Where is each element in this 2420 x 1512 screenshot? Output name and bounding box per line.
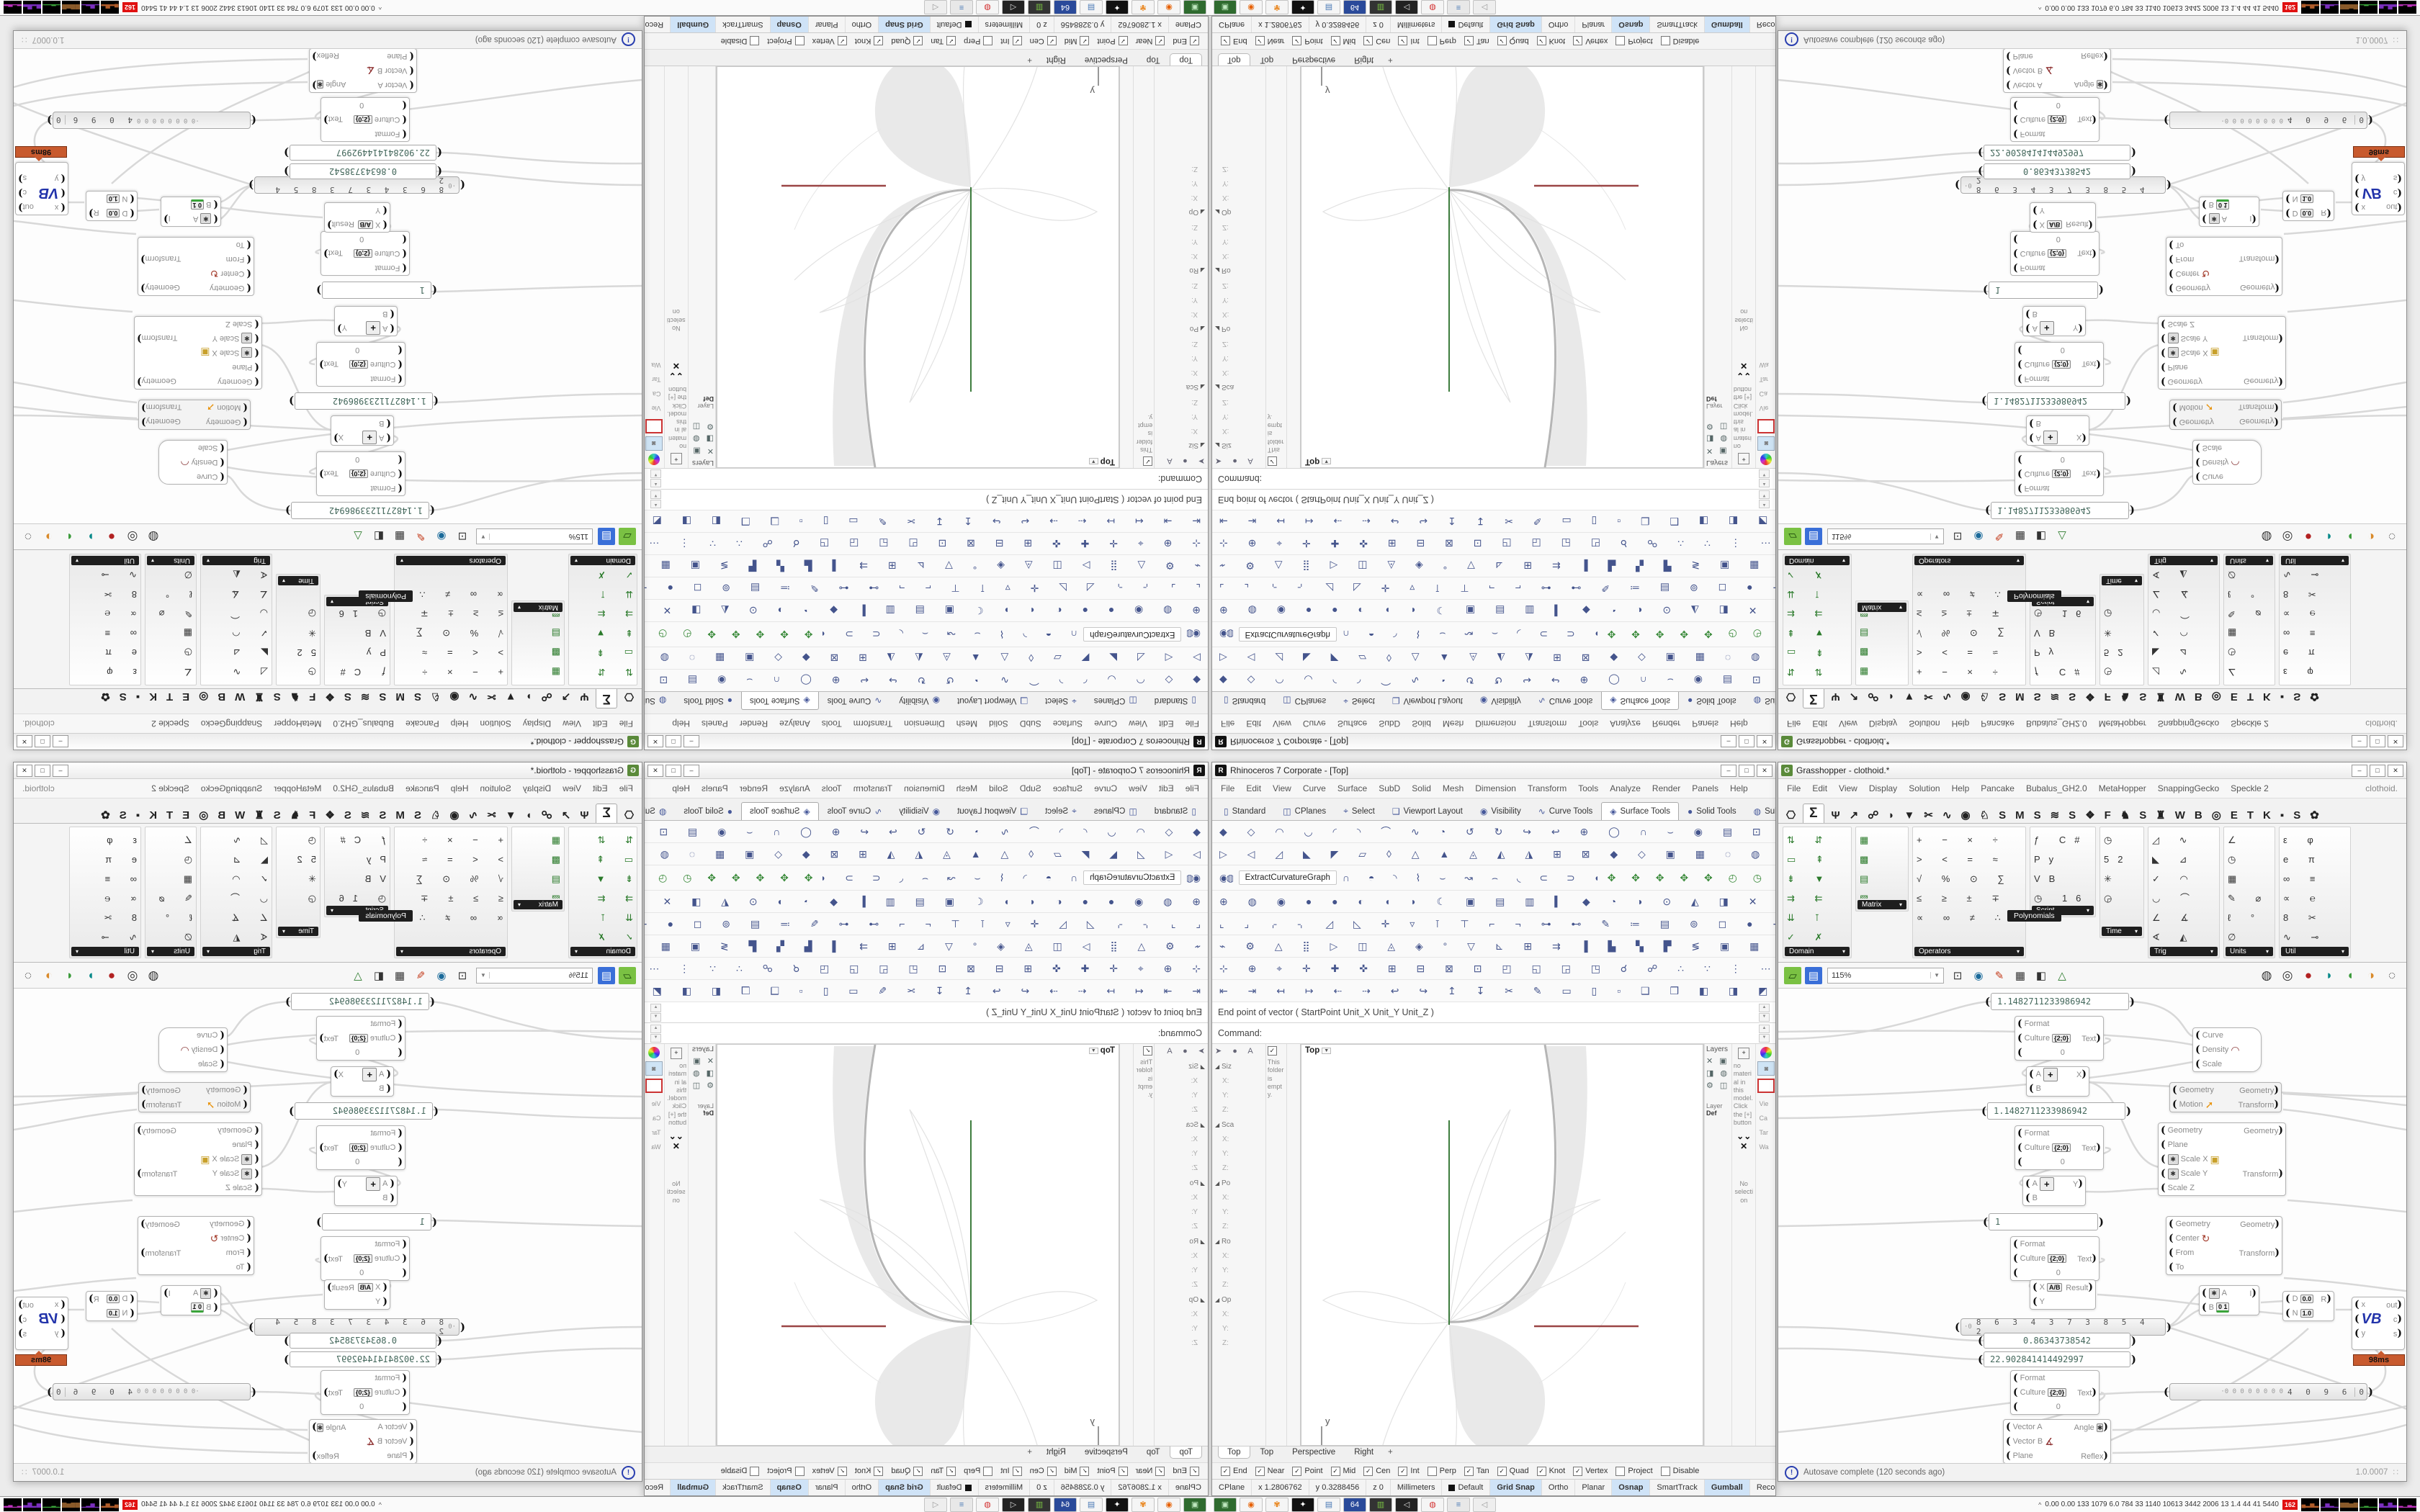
component-tab-icon[interactable]: ♜ xyxy=(252,689,266,705)
rhino-toolbar-row[interactable]: ⌁ ⚙ △ ⣿ ▷ ◫ ◬ ◈ ° ▽ ⊾ ⊞ ⇉ ▐ ▙ ▚ ▛ ≶ ▣ ▦ … xyxy=(1212,935,1775,958)
grasshopper-menu-item[interactable]: Bubalus_GH2.0 xyxy=(333,783,394,793)
rhino-toolbar-tab[interactable]: ● Solid Tools xyxy=(675,692,741,710)
command-scrollbar[interactable]: ▲▼ xyxy=(1759,1002,1770,1022)
resize-grip[interactable]: ∷ xyxy=(20,1467,27,1477)
capture-frame-icon[interactable] xyxy=(645,419,663,433)
status-toggle[interactable]: Record History xyxy=(1750,1480,1775,1495)
gh-move-node[interactable]: Geometry Geometry Motion ➚ Transform xyxy=(138,400,251,430)
rhino-menu-item[interactable]: Mesh xyxy=(956,719,977,729)
viewport-tab[interactable]: Perspective xyxy=(1076,53,1137,66)
ribbon-group-label[interactable]: Matrix xyxy=(1857,603,1906,612)
expression-icon[interactable]: ✱ xyxy=(2168,1169,2179,1179)
viewport-tab[interactable]: Top xyxy=(1170,53,1202,66)
field-y[interactable]: Y: xyxy=(1222,179,1263,187)
ribbon-group-icons[interactable]: ⇅ ⇵ ▭ ⇞ ⇟ ▼ ⇉ ⇇ ⇊ ⊺ ✓ ✗ ↕ ↔ ▤ xyxy=(569,827,637,945)
checkbox-icon[interactable] xyxy=(795,1467,805,1476)
gh-panel[interactable]: 22.902841414492997 xyxy=(290,1351,436,1367)
ribbon-group-label[interactable]: Util xyxy=(71,947,139,956)
grasshopper-menu-item[interactable]: Solution xyxy=(480,719,511,729)
checkbox-icon[interactable] xyxy=(1080,37,1090,46)
expression-icon[interactable]: ✱ xyxy=(200,214,211,225)
rhino-toolbar-row[interactable]: ⊕ ◍ ◉ ● ● ◐ ◖ ◗ ☾ ▣ ▤ ▥ ▍ ◆ ◔ ◑ ⊙ ◭ ◨ ✕ … xyxy=(1212,599,1775,621)
grasshopper-menu-item[interactable]: SnappingGecko xyxy=(201,719,262,729)
tray-graph-tile[interactable]: ▁▅▂▁ xyxy=(81,1498,99,1511)
component-tab-icon[interactable]: ◉ xyxy=(1959,689,1973,705)
gh-scale-nu-node[interactable]: Geometry Geometry Plane ✱ Scale X ▣ ✱ Sc… xyxy=(2158,316,2286,390)
osnap-checkbox[interactable]: Knot xyxy=(855,37,884,46)
rhino-menu-item[interactable]: Surface xyxy=(1053,783,1083,793)
checkbox-icon[interactable] xyxy=(1080,1467,1090,1476)
taskbar-app-icon[interactable]: ▤ xyxy=(1317,1,1340,15)
library-checkbox[interactable]: ✓ xyxy=(1143,456,1152,466)
taskbar-app-icon[interactable]: ▣ xyxy=(1214,1,1237,15)
grasshopper-menu-item[interactable]: Pancake xyxy=(405,783,439,793)
expression-icon[interactable]: ✱ xyxy=(241,348,252,359)
component-tab-icon[interactable]: B xyxy=(215,808,228,823)
status-toggle[interactable]: Osnap xyxy=(1612,1480,1650,1495)
viewport-title[interactable]: Top xyxy=(1101,1046,1115,1055)
component-tab-icon[interactable]: ⎔ xyxy=(622,807,636,823)
preview-mode-icon[interactable]: ◌ xyxy=(2383,528,2401,546)
canvas-tool-icon[interactable]: ▱ xyxy=(619,528,636,546)
taskbar-app-icon[interactable]: ✾ xyxy=(1131,1,1155,15)
field-x[interactable]: X: xyxy=(1222,1252,1263,1260)
osnap-checkbox[interactable]: Tan xyxy=(1464,1467,1489,1476)
canvas-tool-icon[interactable]: ▦ xyxy=(2012,528,2029,546)
maximize-icon[interactable]: □ xyxy=(2370,736,2385,748)
component-tab-icon[interactable]: M xyxy=(393,689,407,704)
component-tab-icon[interactable]: E xyxy=(180,808,192,823)
grasshopper-menu-item[interactable]: Bubalus_GH2.0 xyxy=(2026,719,2087,729)
ribbon-group-icons[interactable]: ▦ ▩ ▤ ▧ ▨ ⊞ xyxy=(1856,613,1908,685)
checkbox-icon[interactable] xyxy=(983,37,992,46)
field-x[interactable]: X: xyxy=(1157,252,1198,260)
rhino-toolbar-tab[interactable]: ▯ Standard xyxy=(1146,692,1205,710)
add-viewport-tab-icon[interactable]: + xyxy=(1023,54,1036,66)
field-z[interactable]: Z: xyxy=(1157,398,1198,406)
minimize-icon[interactable]: – xyxy=(53,765,68,777)
field-x[interactable]: X: xyxy=(1222,310,1263,318)
add-viewport-tab-icon[interactable]: + xyxy=(1023,1446,1036,1458)
osnap-checkbox[interactable]: Perp xyxy=(1428,37,1456,46)
component-tab-icon[interactable]: ↗ xyxy=(560,689,573,705)
canvas-tool-icon[interactable]: △ xyxy=(349,528,367,546)
gh-rotate-node[interactable]: Geometry Geometry Center ↻ From Transfor… xyxy=(2166,237,2282,296)
rhino-toolbar-tab[interactable]: ◫ CPlanes xyxy=(1274,692,1335,710)
maximize-icon[interactable]: □ xyxy=(35,765,50,777)
grasshopper-menu-item[interactable]: Edit xyxy=(593,719,608,729)
rhino-titlebar[interactable]: R Rhinoceros 7 Corporate - [Top] – □ ✕ xyxy=(1212,733,1775,750)
grasshopper-titlebar[interactable]: G Grasshopper - clothoid.* – □ ✕ xyxy=(14,762,642,779)
grasshopper-menu-item[interactable]: Bubalus_GH2.0 xyxy=(2026,783,2087,793)
grasshopper-menu-item[interactable]: Edit xyxy=(593,783,608,793)
layer-default-label[interactable]: Def xyxy=(690,395,714,402)
command-prompt-line[interactable]: Command: ▲▼ xyxy=(645,1023,1208,1044)
grasshopper-menu-item[interactable]: Help xyxy=(1952,783,1970,793)
rhino-toolbar-tab[interactable]: ▯ Standard xyxy=(1215,802,1274,820)
taskbar-app-icon[interactable]: ◉ xyxy=(1240,1498,1263,1512)
tray-graph-tile[interactable]: ▂▁▃▂ xyxy=(4,1498,22,1511)
rhino-toolbar-row[interactable]: ▷ ◁ ◿ ◣ ◤ ▱ ◊ △ ▲ ◬ ◭ ◮ ⊞ ⊠ ◆ ◇ ▣ ▦ ◌ ◍ … xyxy=(645,647,1208,669)
status-toggle[interactable]: Gumball xyxy=(670,17,715,32)
gh-scale-nu-node[interactable]: Geometry Geometry Plane ✱ Scale X ▣ ✱ Sc… xyxy=(134,1122,262,1196)
rhino-menu-item[interactable]: Panels xyxy=(1692,719,1718,729)
capture-frame-icon[interactable] xyxy=(645,1079,663,1093)
camera-icon[interactable]: ◙ xyxy=(645,436,663,451)
grasshopper-menu-item[interactable]: Solution xyxy=(1909,719,1940,729)
component-tab-icon[interactable]: W xyxy=(2173,689,2187,704)
gh-vb-script-node[interactable]: x out VB c y s xyxy=(2352,1297,2405,1350)
taskbar-app-icon[interactable]: ▤ xyxy=(1080,1498,1103,1512)
component-tab-icon[interactable]: S xyxy=(342,689,354,704)
camera-icon[interactable]: ◙ xyxy=(1757,1061,1775,1076)
camera-icon[interactable]: ◙ xyxy=(1757,436,1775,451)
status-toggle[interactable]: Planar xyxy=(1575,17,1612,32)
taskbar-app-icon[interactable]: ◍ xyxy=(1421,1,1444,15)
rhino-toolbar-row[interactable]: ▷ ◁ ◿ ◣ ◤ ▱ ◊ △ ▲ ◬ ◭ ◮ ⊞ ⊠ ◆ ◇ ▣ ▦ ◌ ◍ … xyxy=(1212,647,1775,669)
jar-icon[interactable]: ◍ xyxy=(1187,629,1193,641)
component-tab-icon[interactable]: Ψ xyxy=(1829,808,1842,823)
rhino-toolbar-tab[interactable]: ◉ Visibility xyxy=(1471,802,1530,820)
rhino-menu-item[interactable]: Tools xyxy=(822,783,842,793)
command-scrollbar[interactable]: ▲▼ xyxy=(1759,469,1770,489)
rhino-toolbar-row[interactable]: ⊹ ⊕ ⌖ ✛ ✚ ✜ ⊞ ⊟ ⊠ ⊡ ◰ ◱ ◲ ◳ ☌ ☍ ∴ ∵ ⋮ ⋯ … xyxy=(645,958,1208,980)
field-z[interactable]: Z: xyxy=(1222,1164,1263,1172)
taskbar-app-icon[interactable]: ≡ xyxy=(1447,1498,1470,1512)
ribbon-group-icons[interactable]: ⇅ ⇵ ▭ ⇞ ⇟ ▼ ⇉ ⇇ ⇊ ⊺ ✓ ✗ ↕ ↔ ▤ xyxy=(1783,827,1851,945)
canvas-tool-icon[interactable]: ◉ xyxy=(433,528,450,546)
osnap-checkbox[interactable]: Vertex xyxy=(1573,37,1608,46)
tray-chevron-icon[interactable]: ^ xyxy=(379,4,382,12)
osnap-checkbox[interactable]: Perp xyxy=(1428,1467,1456,1476)
ribbon-group-label[interactable]: Units xyxy=(2226,947,2273,956)
ribbon-group-icons[interactable]: ◷ 52 ✳ ◶ xyxy=(2100,587,2143,685)
rhino-viewport[interactable]: Top ▼ xyxy=(1301,1044,1703,1446)
preview-mode-icon[interactable]: ◑ xyxy=(2362,528,2380,546)
osnap-checkbox[interactable]: Quad xyxy=(891,37,923,46)
component-tab-icon[interactable]: ◗ xyxy=(524,689,534,704)
ribbon-group-icons[interactable]: + − × ÷ > < = ≈ √ % ⊙ ∑ ≤ ≥ ± ∓ ∝ ∞ ≠ ∴ xyxy=(1913,567,2025,685)
component-tab-icon[interactable]: ◉ xyxy=(447,807,461,823)
preview-mode-icon[interactable]: ◗ xyxy=(82,967,99,984)
library-checkbox[interactable]: ✓ xyxy=(1268,456,1277,466)
component-tab-icon[interactable]: S xyxy=(272,808,283,823)
extract-curvature-graph-button[interactable]: ExtractCurvatureGraph xyxy=(1083,627,1181,642)
gh-panel[interactable]: 1.1482711233986942 xyxy=(1987,1102,2125,1120)
rhino-toolbar-row[interactable]: ⌞ ⌟ ⌌ ⌍ ◿ ◺ ✛ ▿ ⊺ ⊤ ⌐ ¬ ⊶ ⊷ ✎ ≔ ▤ ⊚ ◻ ● … xyxy=(1212,913,1775,935)
tray-graph-tile[interactable]: ▂▁▃▂ xyxy=(2398,1498,2416,1511)
rhino-toolbar-row[interactable]: ◆ ◇ ◠ ◡ ◜ ◝ ⌒ ∿ ◔ ↺ ↻ ↪ ↩ ⊕ ◯ ∩ ⌣ ◉ ▤ ⊡ … xyxy=(645,821,1208,843)
command-scrollbar[interactable]: ▲▼ xyxy=(650,1023,661,1043)
zoom-select[interactable]: 115%▼ xyxy=(476,529,593,545)
gh-panel[interactable]: 1.1482711233986942 xyxy=(291,502,429,519)
rhino-toolbar-tab[interactable]: ● Solid Tools xyxy=(675,802,741,820)
checkbox-icon[interactable] xyxy=(983,1467,992,1476)
rhino-titlebar[interactable]: R Rhinoceros 7 Corporate - [Top] – □ ✕ xyxy=(645,733,1208,750)
preview-mode-icon[interactable]: ● xyxy=(2300,967,2317,984)
jar-icon[interactable]: ◍ xyxy=(1226,872,1232,884)
viewport-tab[interactable]: Top xyxy=(1138,1446,1169,1459)
command-scrollbar[interactable]: ▲▼ xyxy=(650,469,661,489)
gh-curvature-graph-node[interactable]: Curve Density ◠ Scale xyxy=(158,440,228,485)
rhino-menu-item[interactable]: Transform xyxy=(1528,719,1567,729)
ribbon-group-label[interactable]: Matrix xyxy=(1857,900,1906,909)
gh-panel[interactable]: 1 xyxy=(322,1213,431,1230)
osnap-checkbox[interactable]: Tan xyxy=(1464,37,1489,46)
rhino-menu-item[interactable]: Analyze xyxy=(1610,719,1641,729)
command-scrollbar[interactable]: ▲▼ xyxy=(1759,1023,1770,1043)
gh-addition-node[interactable]: A + Y B xyxy=(2022,1176,2086,1206)
taskbar-app-icon[interactable]: ◁ xyxy=(1473,1,1496,15)
viewport-tab[interactable]: Right xyxy=(1345,53,1382,66)
checkbox-icon[interactable] xyxy=(1190,37,1199,46)
component-tab-icon[interactable]: ◎ xyxy=(2210,807,2223,823)
canvas-tool-icon[interactable]: ▦ xyxy=(391,528,408,546)
osnap-checkbox[interactable]: Disable xyxy=(1661,1467,1700,1476)
gh-panel[interactable]: 22.902841414492997 xyxy=(1984,145,2130,161)
tray-graph-tile[interactable]: ▁▅▂▁ xyxy=(2321,1498,2339,1511)
grasshopper-menu-item[interactable]: SnappingGecko xyxy=(2158,783,2219,793)
checkbox-icon[interactable] xyxy=(1013,37,1022,46)
osnap-checkbox[interactable]: Cen xyxy=(1363,1467,1390,1476)
rhino-menu-item[interactable]: Solid xyxy=(1412,719,1431,729)
gh-scale-nu-node[interactable]: Geometry Geometry Plane ✱ Scale X ▣ ✱ Sc… xyxy=(134,316,262,390)
gh-addition-node[interactable]: A + Y B xyxy=(334,306,398,336)
osnap-checkbox[interactable]: Disable xyxy=(1661,37,1700,46)
color-wheel-icon[interactable] xyxy=(1760,454,1772,465)
preview-mode-icon[interactable]: ◍ xyxy=(2258,528,2275,546)
preview-mode-icon[interactable]: ◌ xyxy=(19,967,37,984)
field-x[interactable]: X: xyxy=(1222,1135,1263,1143)
add-material-button[interactable]: + xyxy=(671,453,682,464)
taskbar-app-icon[interactable]: ◍ xyxy=(976,1498,999,1512)
component-tab-icon[interactable]: M xyxy=(2013,689,2027,704)
curve-tools-icons[interactable]: ∩ ◓ ◝ ⌇ ⌣ ↝ ⌢ ◟ ⊂ ⊃ ◖ ◗ ⊛ ◎ ⊜ ○ ● ◦ ◠ ◡ xyxy=(1343,872,1597,884)
taskbar-app-icon[interactable]: 64 xyxy=(1343,1498,1366,1512)
rhino-toolbar-tab[interactable]: ⌖ Select xyxy=(1335,692,1384,711)
checkbox-icon[interactable] xyxy=(1537,37,1546,46)
field-y[interactable]: Y: xyxy=(1157,1266,1198,1274)
grasshopper-menu-item[interactable]: Pancake xyxy=(1981,783,2015,793)
gh-move-node[interactable]: Geometry Geometry Motion ➚ Transform xyxy=(2169,1082,2282,1112)
gh-divide-domain-node[interactable]: D 0.0 R N 1.0 xyxy=(2282,191,2334,221)
add-viewport-tab-icon[interactable]: + xyxy=(1384,1446,1397,1458)
capture-frame-icon[interactable] xyxy=(1757,419,1775,433)
gh-format-node[interactable]: Format Culture {2;0} Text 0 xyxy=(2015,1016,2104,1061)
component-tab-icon[interactable]: S xyxy=(2066,808,2078,823)
osnap-checkbox[interactable]: Near xyxy=(1136,1467,1165,1476)
field-x[interactable]: X: xyxy=(1222,427,1263,435)
component-tab-icon[interactable]: S xyxy=(412,689,423,704)
preview-mode-icon[interactable]: ◍ xyxy=(145,967,162,984)
checkbox-icon[interactable] xyxy=(1398,37,1407,46)
taskbar-app-icon[interactable]: ◁ xyxy=(1395,1,1418,15)
preview-mode-icon[interactable]: ◗ xyxy=(2321,967,2338,984)
ribbon-group-label[interactable]: Trig xyxy=(2150,947,2218,956)
osnap-checkbox[interactable]: Near xyxy=(1136,37,1165,46)
ribbon-group-icons[interactable]: ∠ ◷ ▦ ✎ ⌀ ℓ ° ∅ xyxy=(2224,567,2275,685)
rhino-menu-item[interactable]: File xyxy=(1186,783,1199,793)
gh-divide-domain-node[interactable]: D 0.0 R N 1.0 xyxy=(86,191,138,221)
grasshopper-menu-item[interactable]: Display xyxy=(1869,719,1897,729)
rhino-toolbar-tab[interactable]: ◫ CPlanes xyxy=(1085,692,1146,710)
ribbon-group-icons[interactable]: ∠ ◷ ▦ ✎ ⌀ ℓ ° ∅ xyxy=(2224,827,2275,945)
component-tab-icon[interactable]: ↗ xyxy=(560,807,573,823)
field-z[interactable]: Z: xyxy=(1157,1164,1198,1172)
tray-graph-tile[interactable]: ▁▂▁▁ xyxy=(42,1,60,14)
component-tab-icon[interactable]: ❖ xyxy=(2083,807,2097,823)
gh-panel[interactable]: 1.1482711233986942 xyxy=(295,392,433,410)
component-tab-icon[interactable]: S xyxy=(412,808,423,823)
command-prompt-line[interactable]: Command: ▲▼ xyxy=(645,468,1208,489)
checkbox-icon[interactable] xyxy=(1190,1467,1199,1476)
viewport-tab[interactable]: Perspective xyxy=(1076,1446,1137,1459)
minimize-icon[interactable]: – xyxy=(684,736,699,748)
osnap-checkbox[interactable]: Quad xyxy=(1497,1467,1529,1476)
checkbox-icon[interactable] xyxy=(1615,37,1625,46)
osnap-checkbox[interactable]: Mid xyxy=(1065,37,1090,46)
field-x[interactable]: X: xyxy=(1157,1135,1198,1143)
viewport-tab[interactable]: Perspective xyxy=(1283,1446,1344,1459)
ribbon-group-label[interactable]: Util xyxy=(71,556,139,565)
field-y[interactable]: Y: xyxy=(1222,1208,1263,1216)
ribbon-group-label[interactable]: Trig xyxy=(202,556,270,565)
rhino-toolbar-row[interactable]: ▷ ◁ ◿ ◣ ◤ ▱ ◊ △ ▲ ◬ ◭ ◮ ⊞ ⊠ ◆ ◇ ▣ ▦ ◌ ◍ … xyxy=(1212,843,1775,865)
close-panel-icon[interactable]: ✕ xyxy=(1734,361,1754,371)
component-tab-icon[interactable]: Σ xyxy=(596,689,617,708)
gh-panel[interactable]: 1.1482711233986942 xyxy=(1987,392,2125,410)
tray-graph-tile[interactable]: ▅▂▆▃ xyxy=(23,1,41,14)
grasshopper-menu-item[interactable]: Speckle 2 xyxy=(2231,719,2269,729)
rhino-menu-item[interactable]: Mesh xyxy=(1443,783,1464,793)
gh-format-node[interactable]: Format Culture {2;0} Text 0 xyxy=(2010,1370,2099,1415)
tray-graph-tile[interactable]: ▂▁▃▂ xyxy=(2398,1,2416,14)
field-x[interactable]: X: xyxy=(1222,194,1263,202)
osnap-checkbox[interactable]: Int xyxy=(1398,1467,1419,1476)
component-tab-icon[interactable]: ♘ xyxy=(429,689,442,705)
tray-graph-tile[interactable]: ▄▂▅▂ xyxy=(2301,1,2319,14)
grasshopper-titlebar[interactable]: G Grasshopper - clothoid.* – □ ✕ xyxy=(1778,733,2406,750)
rhino-titlebar[interactable]: R Rhinoceros 7 Corporate - [Top] – □ ✕ xyxy=(1212,762,1775,779)
rhino-menu-item[interactable]: Curve xyxy=(1094,719,1117,729)
component-tab-icon[interactable]: ◗ xyxy=(1886,808,1896,823)
preview-mode-icon[interactable]: ◖ xyxy=(2341,967,2359,984)
zoom-select[interactable]: 115%▼ xyxy=(1827,529,1944,545)
gh-panel[interactable]: 1 xyxy=(1989,282,2098,299)
preview-mode-icon[interactable]: ◌ xyxy=(2383,967,2401,984)
preview-mode-icon[interactable]: ◎ xyxy=(2279,967,2296,984)
rhino-toolbar-tab[interactable]: ∿ Curve Tools xyxy=(819,692,891,710)
command-prompt-line[interactable]: Command: ▲▼ xyxy=(1212,468,1775,489)
checkbox-icon[interactable] xyxy=(1119,1467,1128,1476)
rhino-toolbar-tab[interactable]: ◈ Surface Tools xyxy=(1601,692,1679,710)
layer-default-label[interactable]: Def xyxy=(1706,1110,1730,1117)
expression-icon[interactable]: ✱ xyxy=(241,1154,252,1165)
expression-icon[interactable]: ✱ xyxy=(2097,1423,2104,1432)
component-tab-icon[interactable]: ≋ xyxy=(2048,807,2062,823)
rhino-menu-item[interactable]: Surface xyxy=(1337,783,1367,793)
rhino-menu-item[interactable]: SubD xyxy=(1379,719,1400,729)
rhino-toolbar-row[interactable]: ⌞ ⌟ ⌌ ⌍ ◿ ◺ ✛ ▿ ⊺ ⊤ ⌐ ¬ ⊶ ⊷ ✎ ≔ ▤ ⊚ ◻ ● … xyxy=(645,577,1208,599)
minimize-icon[interactable]: – xyxy=(2352,765,2367,777)
expression-icon[interactable]: ✱ xyxy=(2168,1154,2179,1165)
ribbon-group-label[interactable]: Trig xyxy=(202,947,270,956)
rhino-menu-item[interactable]: Transform xyxy=(1528,783,1567,793)
gh-rotate-node[interactable]: Geometry Geometry Center ↻ From Transfor… xyxy=(138,1216,254,1275)
rhino-menu-item[interactable]: Transform xyxy=(853,719,892,729)
status-toggle[interactable]: Grid Snap xyxy=(878,17,930,32)
status-toggle[interactable]: Osnap xyxy=(1612,17,1650,32)
gh-format-node[interactable]: Format Culture {2;0} Text 0 xyxy=(2010,231,2099,276)
component-tab-icon[interactable]: ∿ xyxy=(1940,807,1954,823)
expression-icon[interactable]: ✱ xyxy=(200,1288,211,1299)
component-tab-icon[interactable]: S xyxy=(2291,808,2303,823)
rhino-menu-item[interactable]: Dimension xyxy=(1475,783,1516,793)
component-tab-icon[interactable]: F xyxy=(307,689,318,704)
component-tab-icon[interactable]: ↗ xyxy=(1847,689,1861,705)
checkbox-icon[interactable] xyxy=(1155,37,1165,46)
grasshopper-menu-item[interactable]: View xyxy=(1839,719,1857,729)
viewport-tab[interactable]: Top xyxy=(1138,53,1169,66)
rhino-toolbar-tab[interactable]: ∿ Curve Tools xyxy=(819,802,891,820)
ribbon-group-icons[interactable]: ◿ ∿ ◣ ⊿ ✓ ◠ ◡ ⌒ ∠ ∡ ∢ ◭ xyxy=(201,567,272,685)
field-z[interactable]: Z: xyxy=(1157,1339,1198,1347)
checkbox-icon[interactable] xyxy=(1497,37,1507,46)
add-material-button[interactable]: + xyxy=(1738,453,1749,464)
field-x[interactable]: X: xyxy=(1157,1194,1198,1202)
canvas-tool-icon[interactable]: ▦ xyxy=(391,967,408,984)
rhino-menu-item[interactable]: Dimension xyxy=(904,719,945,729)
checkbox-icon[interactable] xyxy=(1363,1467,1373,1476)
component-tab-icon[interactable]: S xyxy=(2291,689,2303,704)
osnap-checkbox[interactable]: Project xyxy=(767,1467,804,1476)
rhino-menu-item[interactable]: Help xyxy=(1730,783,1748,793)
rhino-toolbar-row[interactable]: ⌞ ⌟ ⌌ ⌍ ◿ ◺ ✛ ▿ ⊺ ⊤ ⌐ ¬ ⊶ ⊷ ✎ ≔ ▤ ⊚ ◻ ● … xyxy=(1212,577,1775,599)
checkbox-icon[interactable] xyxy=(1497,1467,1507,1476)
field-y[interactable]: Y: xyxy=(1222,354,1263,362)
canvas-tool-icon[interactable]: ◧ xyxy=(2033,528,2050,546)
layer-default-label[interactable]: Def xyxy=(1706,395,1730,402)
curve-tools-icons[interactable]: ∩ ◓ ◝ ⌇ ⌣ ↝ ⌢ ◟ ⊂ ⊃ ◖ ◗ ⊛ ◎ ⊜ ○ ● ◦ ◠ ◡ xyxy=(823,872,1077,884)
viewport-tab[interactable]: Right xyxy=(1038,1446,1075,1459)
color-wheel-icon[interactable] xyxy=(648,1047,660,1058)
component-tab-icon[interactable]: T xyxy=(2245,689,2256,704)
osnap-checkbox[interactable]: End xyxy=(1173,1467,1199,1476)
gh-format-node[interactable]: Format Culture {2;0} Text 0 xyxy=(2015,342,2104,387)
rhino-menu-item[interactable]: Analyze xyxy=(779,719,810,729)
canvas-tool-icon[interactable]: ▤ xyxy=(598,967,615,984)
taskbar-app-icon[interactable]: ◉ xyxy=(1157,1498,1180,1512)
rhino-toolbar-tab[interactable]: ◍ SubD xyxy=(1745,802,1775,820)
rhino-menu-item[interactable]: File xyxy=(1186,719,1199,729)
component-tab-icon[interactable]: T xyxy=(164,808,175,823)
rhino-toolbar-row[interactable]: ◆ ◇ ◠ ◡ ◜ ◝ ⌒ ∿ ◔ ↺ ↻ ↪ ↩ ⊕ ◯ ∩ ⌣ ◉ ▤ ⊡ … xyxy=(1212,821,1775,843)
taskbar-app-icon[interactable]: ▥ xyxy=(1369,1,1392,15)
ribbon-group-label[interactable]: Operators xyxy=(396,556,506,565)
ribbon-group-icons[interactable]: ⇅ ⇵ ▭ ⇞ ⇟ ▼ ⇉ ⇇ ⇊ ⊺ ✓ ✗ ↕ ↔ ▤ xyxy=(1783,567,1851,685)
rhino-menu-item[interactable]: Dimension xyxy=(904,783,945,793)
gh-number-slider[interactable]: ·0 0 0 0 0 0 0 0 4 0 9 6 0 xyxy=(2169,1383,2367,1400)
rhino-toolbar-row[interactable]: ⇤ ⇥ ↤ ↦ ⇠ ⇢ ↩ ↪ ↥ ↧ ✂ ✎ ▭ ▯ ▫ ❑ ❒ ◧ ◨ ◩ … xyxy=(1212,510,1775,532)
component-tab-icon[interactable]: ▪ xyxy=(2278,689,2286,704)
rhino-menu-item[interactable]: Help xyxy=(672,783,690,793)
component-tab-icon[interactable]: ◎ xyxy=(2210,689,2223,705)
field-y[interactable]: Y: xyxy=(1222,413,1263,420)
checkbox-icon[interactable] xyxy=(1661,37,1670,46)
grasshopper-menu-item[interactable]: MetaHopper xyxy=(2099,719,2146,729)
gh-curvature-graph-node[interactable]: Curve Density ◠ Scale xyxy=(2192,1027,2262,1072)
component-tab-icon[interactable]: ☍ xyxy=(1865,807,1881,823)
